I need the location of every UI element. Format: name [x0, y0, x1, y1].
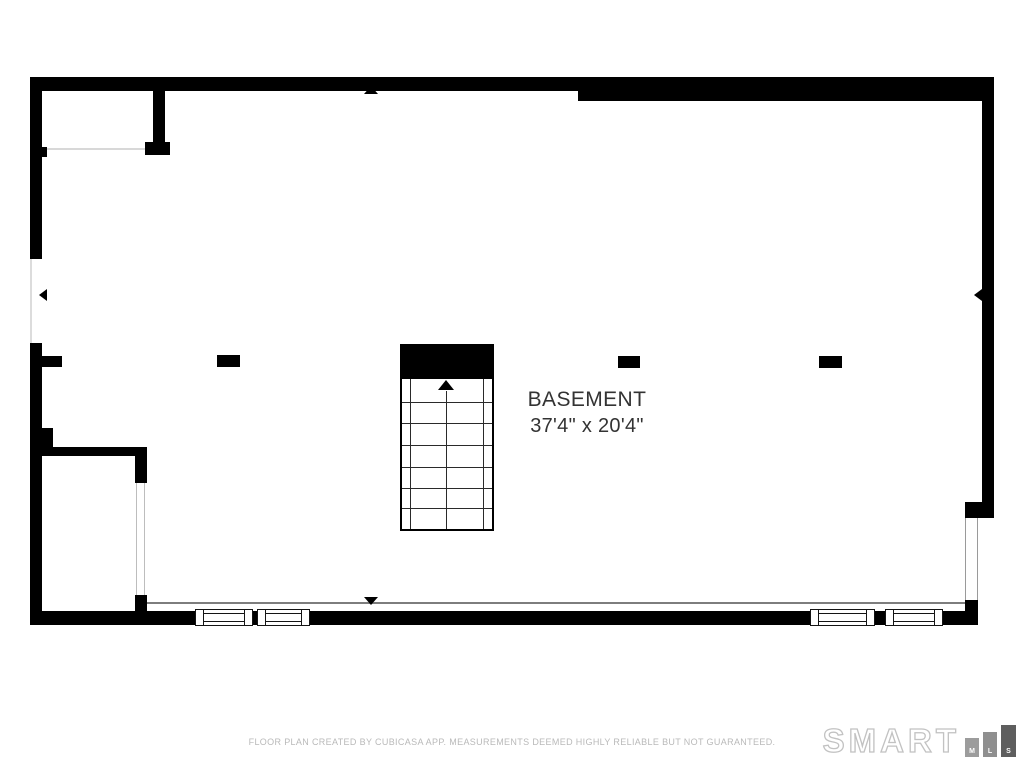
- opening-edge-line: [965, 518, 966, 600]
- window-frame-line: [819, 621, 866, 622]
- interior-wall-stub: [40, 356, 62, 367]
- window-frame-line: [894, 621, 934, 622]
- window-frame-line: [894, 613, 934, 614]
- room-door-opening-line: [144, 483, 145, 595]
- direction-arrow-top-icon: [364, 86, 378, 94]
- exterior-wall-top-left: [30, 77, 578, 91]
- closet-wall-stub: [40, 147, 47, 157]
- logo-brand-text: SMART: [823, 725, 960, 757]
- support-post: [819, 356, 842, 368]
- closet-wall-end: [145, 142, 170, 155]
- storage-room-right-wall: [135, 595, 147, 613]
- window-frame-line: [204, 613, 244, 614]
- exterior-wall-left-upper: [30, 77, 42, 259]
- window-frame-line: [204, 621, 244, 622]
- opening-edge-line: [30, 259, 32, 343]
- room-door-opening-line: [136, 483, 137, 595]
- direction-arrow-left-icon: [39, 289, 47, 301]
- window-frame-line: [266, 613, 301, 614]
- interior-wall-pier: [41, 428, 53, 448]
- storage-room-right-wall: [135, 447, 147, 483]
- logo-bar-s: S: [1001, 725, 1016, 757]
- floor-edge-line: [147, 602, 965, 604]
- door-opening-left: [30, 259, 42, 343]
- window-symbol: [885, 609, 943, 626]
- room-name-label: BASEMENT: [486, 388, 688, 412]
- exterior-wall-right-upper: [982, 77, 994, 502]
- support-post: [217, 355, 240, 367]
- direction-arrow-right-icon: [974, 289, 982, 301]
- storage-room-top-wall: [40, 447, 147, 456]
- window-symbol: [257, 609, 310, 626]
- exterior-wall-right-jog: [965, 502, 994, 518]
- exterior-wall-left-lower: [30, 343, 42, 625]
- support-post: [618, 356, 640, 368]
- window-symbol: [195, 609, 253, 626]
- window-frame-line: [819, 613, 866, 614]
- door-opening-right: [965, 518, 978, 600]
- opening-edge-line: [977, 518, 978, 600]
- logo-bar-m: M: [965, 738, 979, 757]
- logo-mls-bars: M L S: [965, 725, 1016, 757]
- room-dimensions-label: 37'4" x 20'4": [486, 415, 688, 438]
- exterior-wall-top-right: [578, 77, 994, 101]
- stair-up-arrow-icon: [438, 380, 454, 390]
- window-symbol: [810, 609, 875, 626]
- closet-opening-line: [47, 148, 145, 150]
- floorplan-page: BASEMENT 37'4" x 20'4" FLOOR PLAN CREATE…: [0, 0, 1024, 768]
- staircase-landing-wall: [400, 344, 494, 377]
- direction-arrow-bottom-icon: [364, 597, 378, 605]
- closet-wall: [153, 90, 165, 143]
- window-frame-line: [266, 621, 301, 622]
- logo-bar-l: L: [983, 732, 997, 757]
- staircase: [400, 377, 494, 531]
- stair-center-line: [446, 391, 447, 529]
- smart-mls-logo: SMART M L S: [823, 721, 1016, 757]
